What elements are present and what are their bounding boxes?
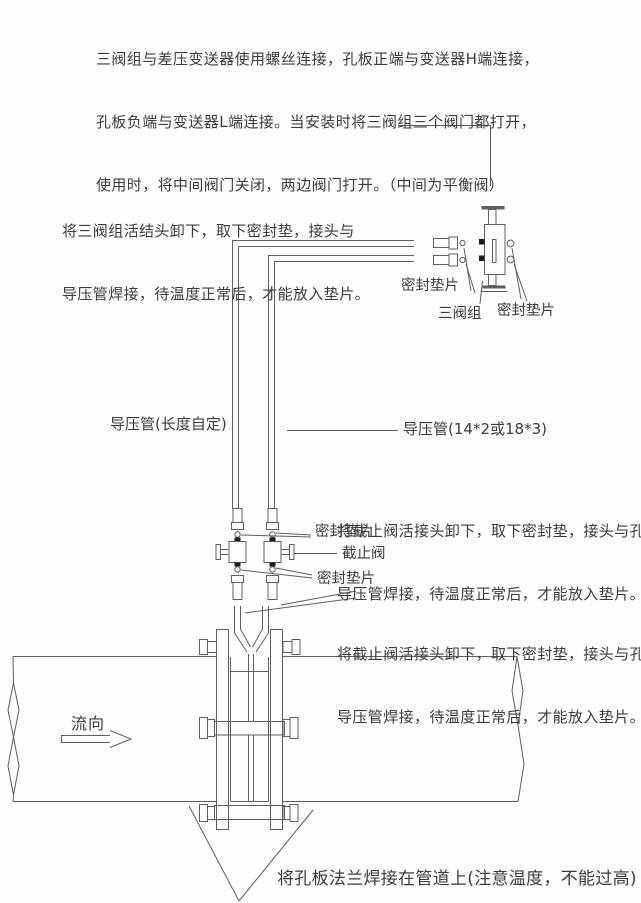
bottom-bolt-bar <box>215 806 285 820</box>
valve-stub-bottom <box>268 583 277 600</box>
pipe-break-left-2 <box>8 683 14 795</box>
orifice-flange-assembly <box>200 630 301 830</box>
label-stop-valve: 截止阀 <box>342 546 386 562</box>
manifold-slot <box>493 240 497 263</box>
valve-nut-bottom <box>267 576 279 583</box>
stop-valve-note-lower-line-2: 导压管焊接，待温度正常后，才能放入垫片。 <box>337 707 641 728</box>
label-seal-gasket-manifold-right: 密封垫片 <box>497 303 555 319</box>
valve-tab-top <box>235 538 241 542</box>
valve-nut-top <box>232 523 244 530</box>
fitting-stub-upper <box>434 239 450 248</box>
manifold-port-upper <box>479 239 485 245</box>
valve-stub-top <box>268 509 277 523</box>
top-instruction-line-2: 孔板负端与变送器L端连接。当安装时将三阀组三个阀门都打开， <box>96 112 539 133</box>
manifold-note-line-1: 将三阀组活结头卸下，取下密封垫，接头与 <box>62 221 370 242</box>
label-seal-gasket-valve-top: 密封垫片 <box>315 524 373 540</box>
flange-right <box>271 630 283 830</box>
label-impulse-pipe-left: 导压管(长度自定) <box>110 416 227 433</box>
bolt-head-bottom-left <box>200 805 208 822</box>
label-three-valve-manifold: 三阀组 <box>438 306 482 322</box>
bolt-head-bottom-right <box>290 805 298 822</box>
fitting-stub-lower <box>434 256 450 265</box>
bolt-nut-top-right <box>283 642 292 653</box>
flow-arrow <box>62 731 132 748</box>
valve-gasket-bottom <box>270 567 275 572</box>
union-fittings <box>434 237 466 266</box>
manifold-note: 将三阀组活结头卸下，取下密封垫，接头与 导压管焊接，待温度正常后，才能放入垫片。 <box>62 179 370 347</box>
leader-valve-gasket-bottom-1 <box>241 570 312 578</box>
leader-valve-gasket-top-1 <box>241 535 311 537</box>
manifold-bottom-bar <box>483 286 506 289</box>
stop-valve-note-lower: 将截止阀活接头卸下，取下密封垫，接头与孔板 导压管焊接，待温度正常后，才能放入垫… <box>337 602 641 770</box>
stop-valve-note-upper-line-1: 将截止阀活接头卸下，取下密封垫，接头与孔板 <box>337 521 641 542</box>
valve-handle-stem <box>281 550 290 555</box>
bolt-nut-top-left <box>208 642 217 653</box>
gasket-right-upper <box>507 240 514 247</box>
valve-body <box>264 542 281 563</box>
label-flow-direction: 流向 <box>71 715 105 733</box>
fitting-nut-lower <box>449 254 458 266</box>
valve-tab-bottom <box>235 563 241 567</box>
pipe-break-left-1 <box>13 657 19 802</box>
flow-arrow-head <box>110 731 131 748</box>
leader-valve-gasket-top-2 <box>276 533 311 535</box>
valve-handle-bar <box>216 545 221 560</box>
tap-pipes <box>235 606 269 652</box>
valve-body <box>229 542 246 563</box>
stop-valve-left <box>216 509 246 600</box>
bolt-nut-bottom-left <box>208 807 215 820</box>
manifold-stem-bottom <box>489 275 497 286</box>
bolt-nut-mid-left <box>208 720 215 737</box>
gasket-right-lower <box>507 256 514 263</box>
gasket-left-lower <box>460 257 465 262</box>
stop-valve-note-lower-line-1: 将截止阀活接头卸下，取下密封垫，接头与孔板 <box>337 644 641 665</box>
valve-handle-stem <box>221 550 230 555</box>
valve-gasket-bottom <box>235 567 240 572</box>
label-seal-gasket-valve-bottom: 密封垫片 <box>317 571 375 587</box>
bolt-head-top-right <box>292 640 300 655</box>
middle-bolt-bar <box>215 722 285 736</box>
leader-valve-gasket-bottom-2 <box>276 568 312 575</box>
bottom-weld-note: 将孔板法兰焊接在管道上(注意温度，不能过高) <box>277 869 637 889</box>
valve-stub-top <box>233 509 242 523</box>
top-instruction-line-1: 三阀组与差压变送器使用螺丝连接，孔板正端与变送器H端连接， <box>96 49 539 70</box>
weld-leader-left <box>189 806 239 901</box>
valve-gasket-top <box>235 532 240 537</box>
valve-tab-bottom <box>270 563 276 567</box>
valve-handle-bar <box>290 545 295 560</box>
manifold-note-line-2: 导压管焊接，待温度正常后，才能放入垫片。 <box>62 284 370 305</box>
bolt-head-mid-left <box>200 718 208 739</box>
label-impulse-pipe-right: 导压管(14*2或18*3) <box>403 421 547 438</box>
valve-stub-bottom <box>233 583 242 600</box>
bolt-head-mid-right <box>290 718 298 739</box>
leader-gasket-right-1 <box>512 248 521 299</box>
stop-valve-right <box>264 509 294 600</box>
flow-arrow-shaft <box>62 736 111 743</box>
valve-nut-top <box>267 523 279 530</box>
leader-manifold <box>480 281 483 304</box>
flange-left <box>217 630 229 830</box>
bolt-head-top-left <box>200 640 208 655</box>
label-seal-gasket-manifold-left: 密封垫片 <box>401 278 459 294</box>
manifold-port-lower <box>479 256 485 262</box>
diagram-page: 三阀组与差压变送器使用螺丝连接，孔板正端与变送器H端连接， 孔板负端与变送器L端… <box>0 0 641 903</box>
fitting-nut-upper <box>449 237 458 249</box>
gasket-left-upper <box>460 240 465 245</box>
valve-tab-top <box>270 538 276 542</box>
valve-nut-bottom <box>232 576 244 583</box>
